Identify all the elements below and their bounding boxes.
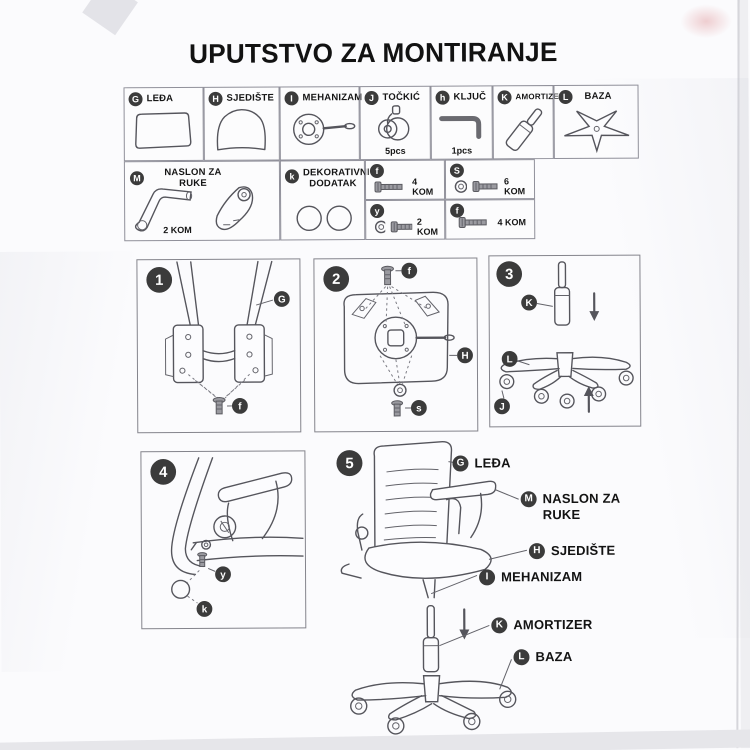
label-seat: H SJEDIŠTE <box>529 543 616 560</box>
label-badge: M <box>521 491 537 507</box>
part-label: SJEDIŠTE <box>227 93 275 104</box>
label-badge: L <box>513 649 529 665</box>
step-4-drawing: y k 4 <box>141 451 305 628</box>
part-badge: G <box>129 92 143 106</box>
step-number: 4 <box>159 465 168 481</box>
part-label: BAZA <box>585 91 612 102</box>
step-number: 1 <box>155 273 163 289</box>
part-badge: K <box>498 90 512 104</box>
label-text: NASLON ZA RUKE <box>543 491 625 524</box>
part-label: DEKORATIVNI DODATAK <box>303 168 363 190</box>
callout-backrest-G: G <box>278 294 286 305</box>
part-qty: 1pcs <box>432 145 492 155</box>
callout-screw-y: y <box>220 570 226 581</box>
part-cell-backrest: G LEĐA <box>123 87 203 161</box>
step-number: 3 <box>505 267 513 283</box>
callout-base-L: L <box>507 354 513 365</box>
label-badge: I <box>479 569 495 585</box>
part-cell-allen-key: h KLJUČ 1pcs <box>430 85 492 159</box>
label-badge: K <box>491 617 507 633</box>
page-title: UPUTSTVO ZA MONTIRANJE <box>9 36 737 71</box>
step-4-panel: y k 4 <box>140 450 306 629</box>
step-1-drawing: f G 1 <box>137 259 300 432</box>
base-drawing <box>555 104 638 154</box>
part-badge: k <box>285 169 299 183</box>
label-base: L BAZA <box>513 649 572 666</box>
part-badge: J <box>365 91 379 105</box>
step-2-panel: f s H 2 <box>313 257 478 432</box>
step-5-chair-drawing <box>330 437 567 738</box>
label-text: BAZA <box>535 649 572 665</box>
part-badge: L <box>559 90 573 104</box>
callout-seat-H: H <box>461 351 468 362</box>
seat-drawing <box>209 106 275 154</box>
screw-cell-s: S 6 KOM <box>445 159 535 199</box>
part-cell-caster: J TOČKIĆ 5pcs <box>359 86 430 160</box>
step-3-drawing: K L J 3 <box>489 256 640 427</box>
label-gas-lift: K AMORTIZER <box>491 617 592 634</box>
screw-qty: 4 KOM <box>412 177 440 197</box>
allen-key-drawing <box>435 104 489 142</box>
part-cell-gas-lift: K AMORTIZER <box>492 85 553 159</box>
screw-badge: S <box>450 164 464 178</box>
screw-qty: 4 KOM <box>497 217 526 227</box>
washer-icon <box>454 180 467 194</box>
part-label: KLJUČ <box>454 92 487 103</box>
step-number: 2 <box>332 272 340 288</box>
decor-cap-drawing <box>286 203 362 235</box>
part-cell-decor-cap: k DEKORATIVNI DODATAK <box>280 160 365 240</box>
callout-caster-J: J <box>499 402 505 413</box>
step-1-panel: f G 1 <box>136 258 301 433</box>
label-backrest: G LEĐA <box>452 455 510 472</box>
screw-badge: f <box>370 164 384 178</box>
screw-badge: f <box>450 204 464 218</box>
callout-screw-s: s <box>416 403 422 414</box>
screw-cell-y: y 2 KOM <box>365 200 445 240</box>
part-badge: h <box>436 91 450 105</box>
label-text: SJEDIŠTE <box>551 543 616 560</box>
step-2-drawing: f s H 2 <box>314 258 477 431</box>
part-badge: H <box>209 92 223 106</box>
scan-corner-shadow <box>82 0 138 35</box>
screw-badge: y <box>370 204 384 218</box>
caster-drawing <box>366 105 424 143</box>
callout-cap-k: k <box>202 604 208 615</box>
part-cell-base: L BAZA <box>553 85 638 159</box>
paper: UPUTSTVO ZA MONTIRANJE G LEĐA H SJEDIŠTE… <box>0 0 750 750</box>
screw-qty: 2 KOM <box>417 217 440 237</box>
washer-icon <box>374 220 386 234</box>
screw-cell-f2: f 4 KOM <box>445 199 535 239</box>
gas-lift-drawing <box>495 104 551 156</box>
label-badge: H <box>529 543 545 559</box>
part-cell-armrest: M NASLON ZA RUKE 2 KOM <box>124 160 280 241</box>
part-qty: 5pcs <box>361 146 430 156</box>
mechanism-drawing <box>282 105 358 151</box>
screw-cell-f: f 4 KOM <box>365 160 445 200</box>
armrest-drawing <box>127 180 277 237</box>
screw-icon <box>391 221 412 233</box>
screw-icon <box>472 180 499 192</box>
scanned-instruction-sheet: UPUTSTVO ZA MONTIRANJE G LEĐA H SJEDIŠTE… <box>0 0 750 750</box>
screw-qty: 6 KOM <box>504 176 530 196</box>
part-label: LEĐA <box>147 94 174 105</box>
screw-icon <box>374 181 407 193</box>
label-text: MEHANIZAM <box>501 569 582 586</box>
part-label: MEHANIZAM <box>303 93 363 104</box>
label-mechanism: I MEHANIZAM <box>479 569 582 586</box>
part-badge: I <box>285 91 299 105</box>
step-3-panel: K L J 3 <box>488 255 641 428</box>
screw-icon <box>458 216 492 228</box>
backrest-drawing <box>129 106 199 154</box>
label-text: LEĐA <box>474 455 510 471</box>
part-cell-seat: H SJEDIŠTE <box>203 86 279 160</box>
label-badge: G <box>452 456 468 472</box>
label-text: AMORTIZER <box>513 617 592 634</box>
label-armrest: M NASLON ZA RUKE <box>521 491 625 524</box>
part-label: TOČKIĆ <box>383 92 421 103</box>
part-cell-mechanism: I MEHANIZAM <box>279 86 359 160</box>
scan-pink-smudge <box>680 4 732 38</box>
callout-lift-K: K <box>526 298 534 309</box>
part-qty: 2 KOM <box>163 225 192 235</box>
